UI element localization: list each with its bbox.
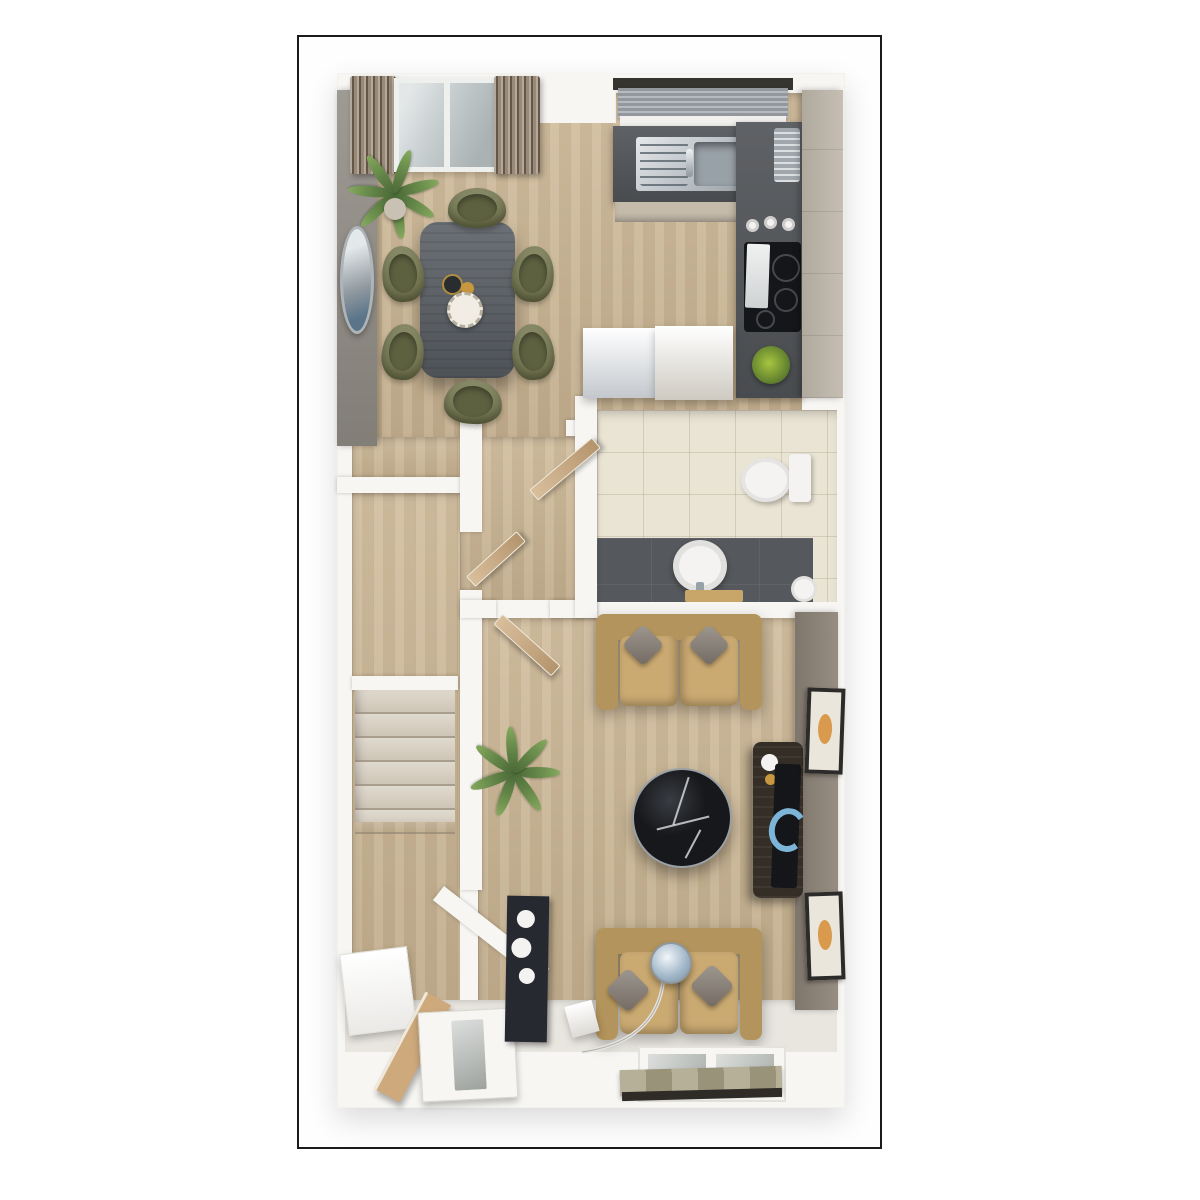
wall-art xyxy=(804,891,845,980)
toilet-bowl xyxy=(741,458,791,502)
kitchen-canister xyxy=(782,218,795,231)
dining-potted-palm xyxy=(352,140,436,236)
fridge-freezer xyxy=(583,328,655,398)
sink-basin xyxy=(694,142,740,186)
dining-chair xyxy=(448,188,506,228)
coffee-table xyxy=(632,768,732,868)
tv xyxy=(771,764,801,889)
kitchen-window-blind xyxy=(618,88,788,118)
wc-wooden-mat xyxy=(685,590,743,602)
cabinet-decor xyxy=(511,938,531,958)
marble-vein xyxy=(672,777,689,825)
wc-waste-bin xyxy=(791,576,817,602)
kitchen-canister xyxy=(764,216,777,229)
sofa-back xyxy=(596,614,762,640)
chair-seat xyxy=(457,194,496,222)
staircase xyxy=(355,690,455,822)
chair-seat xyxy=(453,385,494,418)
kitchen-sink xyxy=(636,137,746,191)
stair-step xyxy=(355,690,455,714)
sofa-arm xyxy=(596,614,618,710)
entry-dark-cabinet xyxy=(505,896,550,1043)
kitchen-tall-cabinets xyxy=(802,90,843,398)
front-door xyxy=(418,1008,519,1103)
art-motif xyxy=(818,714,833,744)
wall-art xyxy=(805,687,846,774)
stair-step xyxy=(355,714,455,738)
wall-living-top-left xyxy=(460,600,496,618)
sink-drainer xyxy=(640,142,688,186)
sofa-arm xyxy=(740,928,762,1040)
wall-wc-left xyxy=(575,396,597,618)
stair-step xyxy=(355,810,455,834)
curtain-right xyxy=(494,76,540,174)
table-plate xyxy=(447,292,483,328)
plant-pot xyxy=(384,198,406,220)
hob-burner xyxy=(774,288,798,312)
hob-burner xyxy=(772,254,800,282)
kitchen-appliance-unit xyxy=(655,326,733,400)
media-unit xyxy=(753,742,803,898)
dining-table xyxy=(420,222,515,378)
sofa-arm xyxy=(740,614,762,710)
chair-seat xyxy=(387,330,419,372)
front-door-glazing xyxy=(451,1019,487,1091)
chair-seat xyxy=(387,252,419,294)
hob-burner xyxy=(756,310,775,329)
stair-step xyxy=(355,762,455,786)
wall-hall-dining xyxy=(337,477,460,493)
marble-vein xyxy=(657,815,710,830)
kitchen-base-cabinet-front xyxy=(615,202,747,222)
baking-tray xyxy=(745,244,770,309)
floor-plan-image xyxy=(0,0,1200,1200)
stair-step xyxy=(355,738,455,762)
room-wc xyxy=(597,410,837,602)
art-motif xyxy=(817,920,832,950)
sink-tap xyxy=(686,149,693,177)
marble-vein xyxy=(685,829,702,858)
cabinet-decor xyxy=(517,910,535,928)
kitchen-herb-plant xyxy=(752,346,790,384)
kitchen-canister xyxy=(746,219,759,232)
toilet-cistern xyxy=(789,454,811,502)
wall-vestibule-left-upper xyxy=(460,420,482,532)
kitchen-hob xyxy=(744,242,801,332)
cabinet-decor xyxy=(519,968,535,984)
wall-patch-top xyxy=(538,73,616,123)
living-potted-palm xyxy=(476,722,552,812)
entry-console-shelf xyxy=(339,946,416,1036)
floor-lamp-shade xyxy=(650,942,692,984)
stairs-top-edge xyxy=(352,676,458,690)
chair-seat xyxy=(517,330,549,372)
stair-step xyxy=(355,786,455,810)
wall-mirror xyxy=(340,226,374,334)
sofa-top xyxy=(596,614,762,710)
kitchen-appliance-steel xyxy=(774,128,800,182)
french-doors-mullion xyxy=(444,83,450,167)
chair-seat xyxy=(517,252,549,294)
